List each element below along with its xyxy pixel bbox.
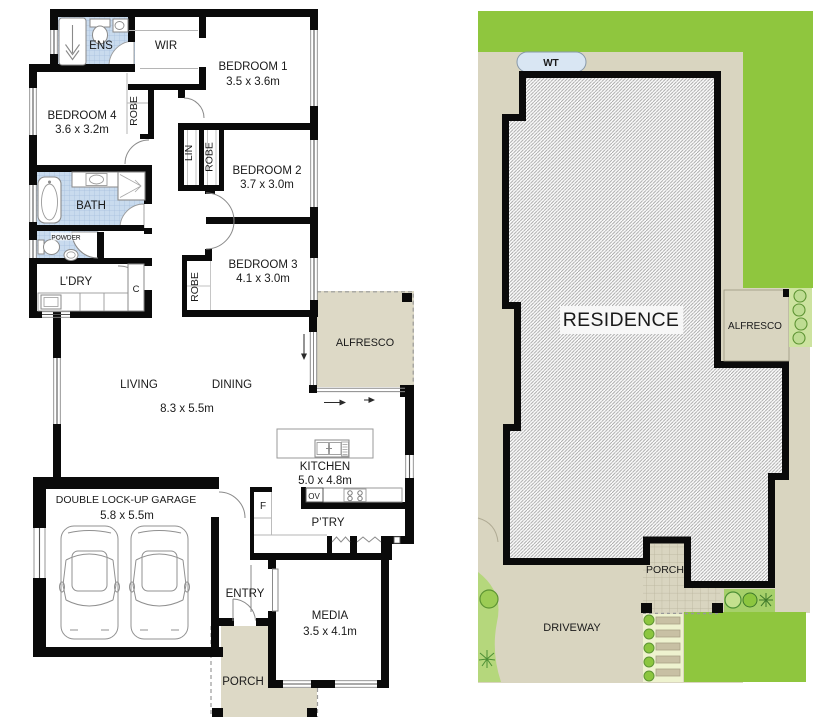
svg-text:DOUBLE LOCK-UP GARAGE: DOUBLE LOCK-UP GARAGE [56, 494, 196, 506]
svg-text:4.1 x 3.0m: 4.1 x 3.0m [236, 273, 290, 285]
svg-text:BEDROOM 4: BEDROOM 4 [47, 110, 117, 122]
svg-text:BEDROOM 1: BEDROOM 1 [218, 61, 287, 73]
svg-text:F: F [260, 501, 266, 512]
svg-text:ENTRY: ENTRY [226, 588, 265, 600]
svg-text:PORCH: PORCH [646, 564, 684, 576]
svg-text:WT: WT [543, 58, 559, 69]
svg-text:LIVING: LIVING [120, 379, 158, 391]
svg-text:KITCHEN: KITCHEN [300, 461, 350, 473]
svg-text:BEDROOM 2: BEDROOM 2 [232, 165, 301, 177]
svg-text:POWDER: POWDER [51, 235, 81, 242]
svg-text:ALFRESCO: ALFRESCO [336, 337, 394, 349]
svg-text:3.5 x 3.6m: 3.5 x 3.6m [226, 76, 280, 88]
svg-text:8.3 x 5.5m: 8.3 x 5.5m [160, 403, 214, 415]
svg-text:MEDIA: MEDIA [312, 610, 349, 622]
svg-text:P’TRY: P’TRY [311, 517, 344, 529]
svg-text:ROBE: ROBE [189, 272, 201, 302]
svg-text:3.6 x 3.2m: 3.6 x 3.2m [55, 124, 109, 136]
svg-text:ENS: ENS [89, 40, 113, 52]
svg-text:PORCH: PORCH [222, 676, 264, 688]
svg-text:5.8 x 5.5m: 5.8 x 5.5m [100, 510, 154, 522]
svg-text:ALFRESCO: ALFRESCO [728, 321, 782, 332]
svg-text:LIN: LIN [183, 145, 195, 161]
svg-text:3.7 x 3.0m: 3.7 x 3.0m [240, 179, 294, 191]
svg-text:C: C [133, 284, 140, 295]
svg-text:ROBE: ROBE [204, 142, 216, 172]
svg-text:BATH: BATH [76, 200, 106, 212]
svg-text:DRIVEWAY: DRIVEWAY [543, 622, 601, 634]
svg-text:5.0 x 4.8m: 5.0 x 4.8m [298, 475, 352, 487]
svg-text:L’DRY: L’DRY [60, 276, 93, 288]
svg-text:BEDROOM 3: BEDROOM 3 [228, 259, 297, 271]
svg-text:3.5 x 4.1m: 3.5 x 4.1m [303, 626, 357, 638]
svg-text:WIR: WIR [155, 40, 177, 52]
svg-text:ROBE: ROBE [128, 96, 140, 126]
svg-text:OV: OV [308, 492, 320, 501]
svg-text:DINING: DINING [212, 379, 252, 391]
svg-text:RESIDENCE: RESIDENCE [563, 309, 679, 331]
